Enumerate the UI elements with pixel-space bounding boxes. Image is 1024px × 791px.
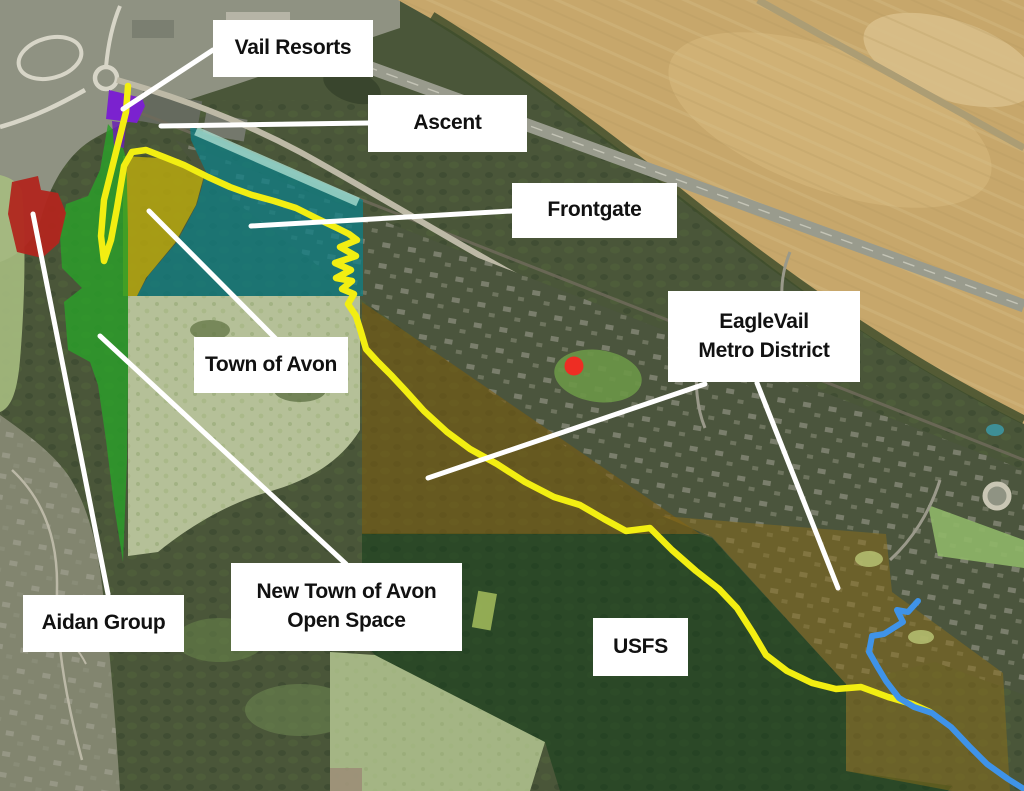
building [132,20,174,38]
label-text: Vail Resorts [235,34,352,63]
red-dot-marker [565,357,584,376]
label-frontgate: Frontgate [512,183,677,238]
label-text: USFS [613,633,668,662]
label-text-line1: New Town of Avon [257,578,437,607]
dirt-patch [330,768,362,791]
label-text: Aidan Group [42,609,166,638]
label-text-line2: Open Space [287,607,405,636]
label-ascent: Ascent [368,95,527,152]
leader-ascent [161,123,368,126]
label-text: Town of Avon [205,351,337,380]
label-eaglevail-metro-district: EagleVail Metro District [668,291,860,382]
map-screenshot: Vail Resorts Ascent Frontgate EagleVail … [0,0,1024,791]
roundabout-east [985,484,1009,508]
label-text-line2: Metro District [698,337,829,366]
label-new-town-of-avon-open-space: New Town of Avon Open Space [231,563,462,651]
label-vail-resorts: Vail Resorts [213,20,373,77]
label-text-line1: EagleVail [719,308,809,337]
label-aidan-group: Aidan Group [23,595,184,652]
label-text: Frontgate [547,196,641,225]
golf-green [855,551,883,567]
golf-green [908,630,934,644]
pond [986,424,1004,436]
label-usfs: USFS [593,618,688,676]
label-text: Ascent [413,109,481,138]
label-town-of-avon: Town of Avon [194,337,348,393]
